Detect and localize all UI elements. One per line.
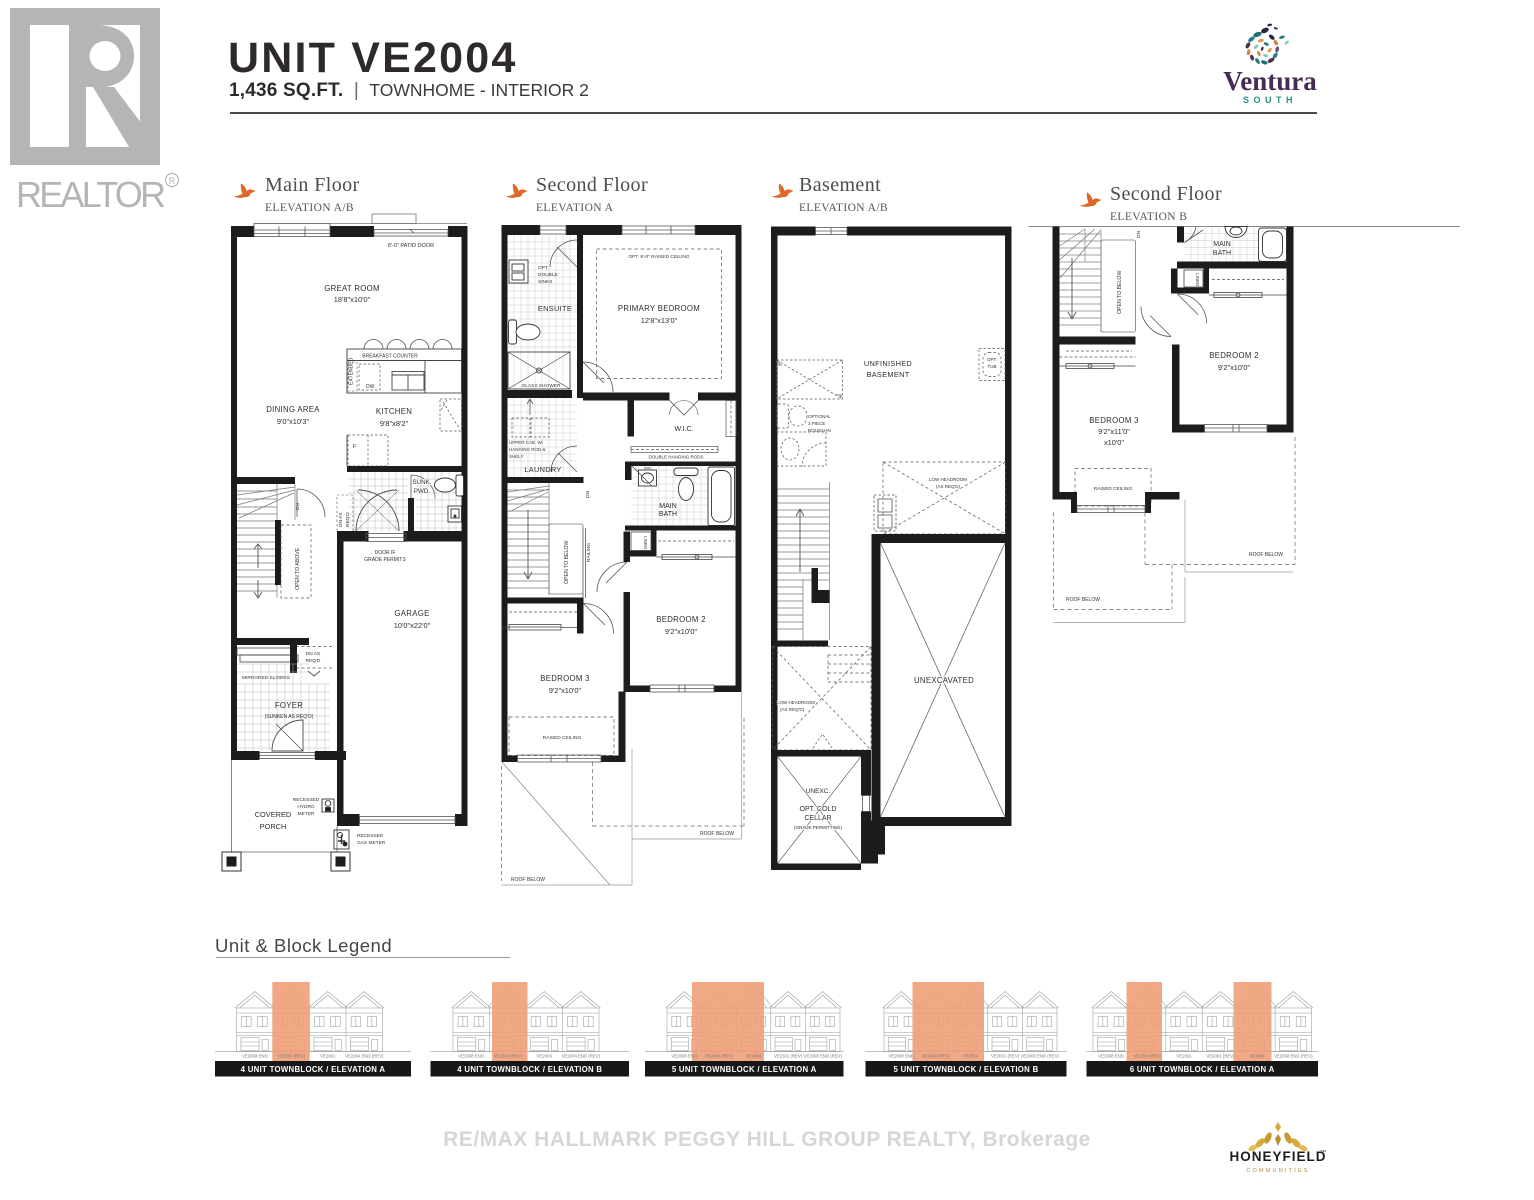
svg-text:RAISED CEILING: RAISED CEILING	[543, 735, 582, 741]
svg-text:VE2001: VE2001	[1176, 1054, 1192, 1059]
svg-text:x10'0": x10'0"	[1104, 438, 1124, 447]
svg-text:OPTIONAL: OPTIONAL	[808, 414, 831, 419]
svg-text:RECESSED: RECESSED	[293, 797, 320, 803]
svg-text:6 UNIT TOWNBLOCK / ELEVATION A: 6 UNIT TOWNBLOCK / ELEVATION A	[1130, 1065, 1275, 1074]
svg-text:VE2301 (REV): VE2301 (REV)	[774, 1054, 803, 1059]
svg-text:VE2004 (REV): VE2004 (REV)	[922, 1054, 951, 1059]
svg-text:DN: DN	[295, 503, 301, 510]
svg-text:VE2008 END (REV): VE2008 END (REV)	[1020, 1054, 1059, 1059]
svg-text:ROOF BELOW: ROOF BELOW	[1066, 597, 1100, 603]
svg-text:10'0"x22'0": 10'0"x22'0"	[394, 621, 431, 630]
svg-text:SUNK.: SUNK.	[413, 479, 432, 486]
svg-text:VE2004: VE2004	[746, 1054, 762, 1059]
svg-text:MIRRORED SLIDERS: MIRRORED SLIDERS	[242, 675, 290, 681]
svg-text:VE2004 (REV): VE2004 (REV)	[705, 1054, 734, 1059]
svg-text:OPEN TO BELOW: OPEN TO BELOW	[564, 541, 570, 584]
svg-text:VE2009: VE2009	[537, 1054, 553, 1059]
svg-text:GARAGE: GARAGE	[394, 609, 429, 618]
svg-text:COVERED: COVERED	[255, 810, 292, 819]
svg-text:HANGING ROD &: HANGING ROD &	[509, 447, 546, 452]
svg-text:VE2008 END: VE2008 END	[242, 1054, 268, 1059]
svg-text:(AS REQ'D): (AS REQ'D)	[780, 707, 805, 712]
svg-text:LINEN: LINEN	[643, 536, 648, 549]
svg-text:OPT.: OPT.	[538, 265, 549, 271]
svg-text:DN: DN	[1136, 231, 1142, 238]
svg-text:BEDROOM 2: BEDROOM 2	[1209, 351, 1259, 360]
svg-text:HONEYFIELD: HONEYFIELD	[1230, 1149, 1327, 1164]
svg-text:UNEXC.: UNEXC.	[806, 788, 831, 795]
svg-text:VE2004: VE2004	[963, 1054, 979, 1059]
svg-text:DOUBLE: DOUBLE	[538, 272, 558, 278]
svg-text:GRADE PERMITS: GRADE PERMITS	[364, 557, 406, 563]
svg-text:(AS REQ'D): (AS REQ'D)	[936, 484, 961, 489]
svg-text:9'2"x10'0": 9'2"x10'0"	[1218, 363, 1251, 372]
svg-text:LINEN: LINEN	[1195, 273, 1200, 286]
svg-text:OPT. COLD: OPT. COLD	[800, 806, 837, 813]
svg-text:VE2008 END (REV): VE2008 END (REV)	[1274, 1054, 1313, 1059]
svg-text:PORCH: PORCH	[260, 822, 287, 831]
svg-text:SHELF: SHELF	[509, 454, 524, 459]
svg-text:ROOF BELOW: ROOF BELOW	[700, 831, 734, 837]
svg-text:GLASS SHOWER: GLASS SHOWER	[522, 383, 561, 389]
svg-text:BASEMENT: BASEMENT	[866, 370, 909, 379]
svg-text:F: F	[353, 444, 357, 450]
svg-text:VE2001 (REV): VE2001 (REV)	[991, 1054, 1020, 1059]
svg-text:™: ™	[1320, 1149, 1326, 1156]
svg-text:9'2"x11'0": 9'2"x11'0"	[1098, 427, 1130, 436]
svg-text:(SUNKEN AS REQ'D): (SUNKEN AS REQ'D)	[265, 714, 314, 720]
svg-text:DINING AREA: DINING AREA	[266, 405, 320, 414]
svg-text:RAILING: RAILING	[586, 543, 592, 562]
svg-text:SINKS: SINKS	[538, 279, 552, 285]
svg-text:DN AS: DN AS	[338, 513, 344, 527]
svg-text:ROUGH-IN: ROUGH-IN	[808, 428, 831, 433]
svg-text:(GRADE PERMITTING): (GRADE PERMITTING)	[794, 825, 843, 830]
svg-text:VE2008 END: VE2008 END	[458, 1054, 484, 1059]
svg-text:TUB: TUB	[988, 364, 997, 369]
svg-text:VE2001: VE2001	[320, 1054, 336, 1059]
svg-text:DN AS: DN AS	[306, 651, 320, 657]
svg-text:ROOF BELOW: ROOF BELOW	[511, 877, 545, 883]
svg-text:BREAKFAST COUNTER: BREAKFAST COUNTER	[362, 354, 418, 360]
svg-text:MAIN: MAIN	[659, 503, 677, 510]
svg-text:OPT.: OPT.	[987, 357, 997, 362]
svg-text:COMMUNITIES: COMMUNITIES	[1246, 1168, 1309, 1174]
svg-text:DOUBLE HANGING RODS: DOUBLE HANGING RODS	[648, 455, 703, 460]
svg-text:LOW HEADROOM: LOW HEADROOM	[777, 700, 815, 705]
svg-text:LAUNDRY: LAUNDRY	[524, 465, 561, 474]
svg-text:5 UNIT TOWNBLOCK / ELEVATION A: 5 UNIT TOWNBLOCK / ELEVATION A	[672, 1065, 817, 1074]
svg-text:REQ'D: REQ'D	[345, 512, 351, 527]
svg-text:9'2"x10'0": 9'2"x10'0"	[549, 686, 582, 695]
svg-text:HYDRO: HYDRO	[297, 804, 315, 810]
svg-text:ROOF BELOW: ROOF BELOW	[1249, 552, 1283, 558]
svg-text:VE2004 (REV): VE2004 (REV)	[494, 1054, 523, 1059]
svg-text:9'0"x10'3": 9'0"x10'3"	[277, 417, 310, 426]
svg-text:VE2008 END: VE2008 END	[672, 1054, 698, 1059]
svg-text:LOW HEADROOM: LOW HEADROOM	[929, 477, 967, 482]
svg-text:MAIN: MAIN	[1213, 241, 1231, 248]
svg-text:VE2001 (REV): VE2001 (REV)	[1206, 1054, 1235, 1059]
svg-text:PRIMARY BEDROOM: PRIMARY BEDROOM	[618, 304, 700, 313]
svg-text:4 UNIT TOWNBLOCK / ELEVATION A: 4 UNIT TOWNBLOCK / ELEVATION A	[241, 1065, 386, 1074]
svg-text:VE2008 END (REV): VE2008 END (REV)	[803, 1054, 842, 1059]
svg-text:CELLAR: CELLAR	[804, 815, 831, 822]
svg-text:8'-0" PATIO DOOR: 8'-0" PATIO DOOR	[388, 243, 434, 249]
svg-text:VE2004: VE2004	[1249, 1054, 1265, 1059]
svg-text:RECESSED: RECESSED	[357, 833, 384, 839]
svg-text:GAS METER: GAS METER	[357, 840, 386, 846]
svg-text:OPEN TO BELOW: OPEN TO BELOW	[1117, 271, 1123, 314]
svg-text:BEDROOM 3: BEDROOM 3	[540, 674, 590, 683]
svg-text:RAISED CEILING: RAISED CEILING	[1094, 486, 1133, 492]
svg-text:REQ'D: REQ'D	[306, 658, 321, 664]
svg-text:VE2004 (REV): VE2004 (REV)	[277, 1054, 306, 1059]
svg-text:BATH: BATH	[1213, 250, 1231, 257]
svg-text:5 UNIT TOWNBLOCK / ELEVATION B: 5 UNIT TOWNBLOCK / ELEVATION B	[893, 1065, 1038, 1074]
svg-text:18'8"x10'0": 18'8"x10'0"	[334, 295, 371, 304]
svg-text:GREAT ROOM: GREAT ROOM	[324, 284, 380, 293]
svg-text:DW: DW	[366, 384, 375, 390]
svg-text:BEDROOM 2: BEDROOM 2	[656, 615, 706, 624]
svg-text:VE2004 (REV): VE2004 (REV)	[1134, 1054, 1163, 1059]
svg-text:OPT. 9'-0" RAISED CEILING: OPT. 9'-0" RAISED CEILING	[628, 254, 690, 260]
svg-text:ENSUITE: ENSUITE	[538, 304, 572, 313]
svg-text:VE2008 END: VE2008 END	[1098, 1054, 1124, 1059]
svg-text:KITCHEN: KITCHEN	[376, 407, 412, 416]
svg-text:3 PIECE: 3 PIECE	[808, 421, 825, 426]
svg-text:UNFINISHED: UNFINISHED	[864, 359, 912, 368]
svg-text:FOYER: FOYER	[275, 701, 303, 710]
svg-text:VE2008 END: VE2008 END	[889, 1054, 915, 1059]
svg-text:VE2004 END (REV): VE2004 END (REV)	[345, 1054, 384, 1059]
svg-text:DN: DN	[585, 491, 591, 498]
svg-text:BATH: BATH	[659, 511, 677, 518]
svg-text:UNEXCAVATED: UNEXCAVATED	[914, 676, 974, 685]
svg-text:PWD.: PWD.	[414, 488, 430, 495]
svg-text:Unit & Block Legend: Unit & Block Legend	[215, 935, 392, 956]
svg-text:W.I.C.: W.I.C.	[674, 426, 693, 433]
svg-text:VE2004 END (REV): VE2004 END (REV)	[562, 1054, 601, 1059]
svg-text:12'8"x13'0": 12'8"x13'0"	[641, 316, 678, 325]
svg-text:DOOR IF: DOOR IF	[375, 550, 396, 556]
svg-text:BEDROOM 3: BEDROOM 3	[1089, 416, 1139, 425]
svg-text:9'8"x8'2": 9'8"x8'2"	[380, 419, 409, 428]
svg-text:4 UNIT TOWNBLOCK / ELEVATION B: 4 UNIT TOWNBLOCK / ELEVATION B	[457, 1065, 602, 1074]
svg-text:UPPER CAB. W/: UPPER CAB. W/	[509, 440, 544, 445]
svg-text:9'2"x10'0": 9'2"x10'0"	[665, 627, 698, 636]
svg-text:OPEN TO ABOVE: OPEN TO ABOVE	[295, 547, 301, 590]
svg-text:EXTENDED: EXTENDED	[349, 357, 355, 385]
svg-text:METER: METER	[298, 811, 315, 817]
